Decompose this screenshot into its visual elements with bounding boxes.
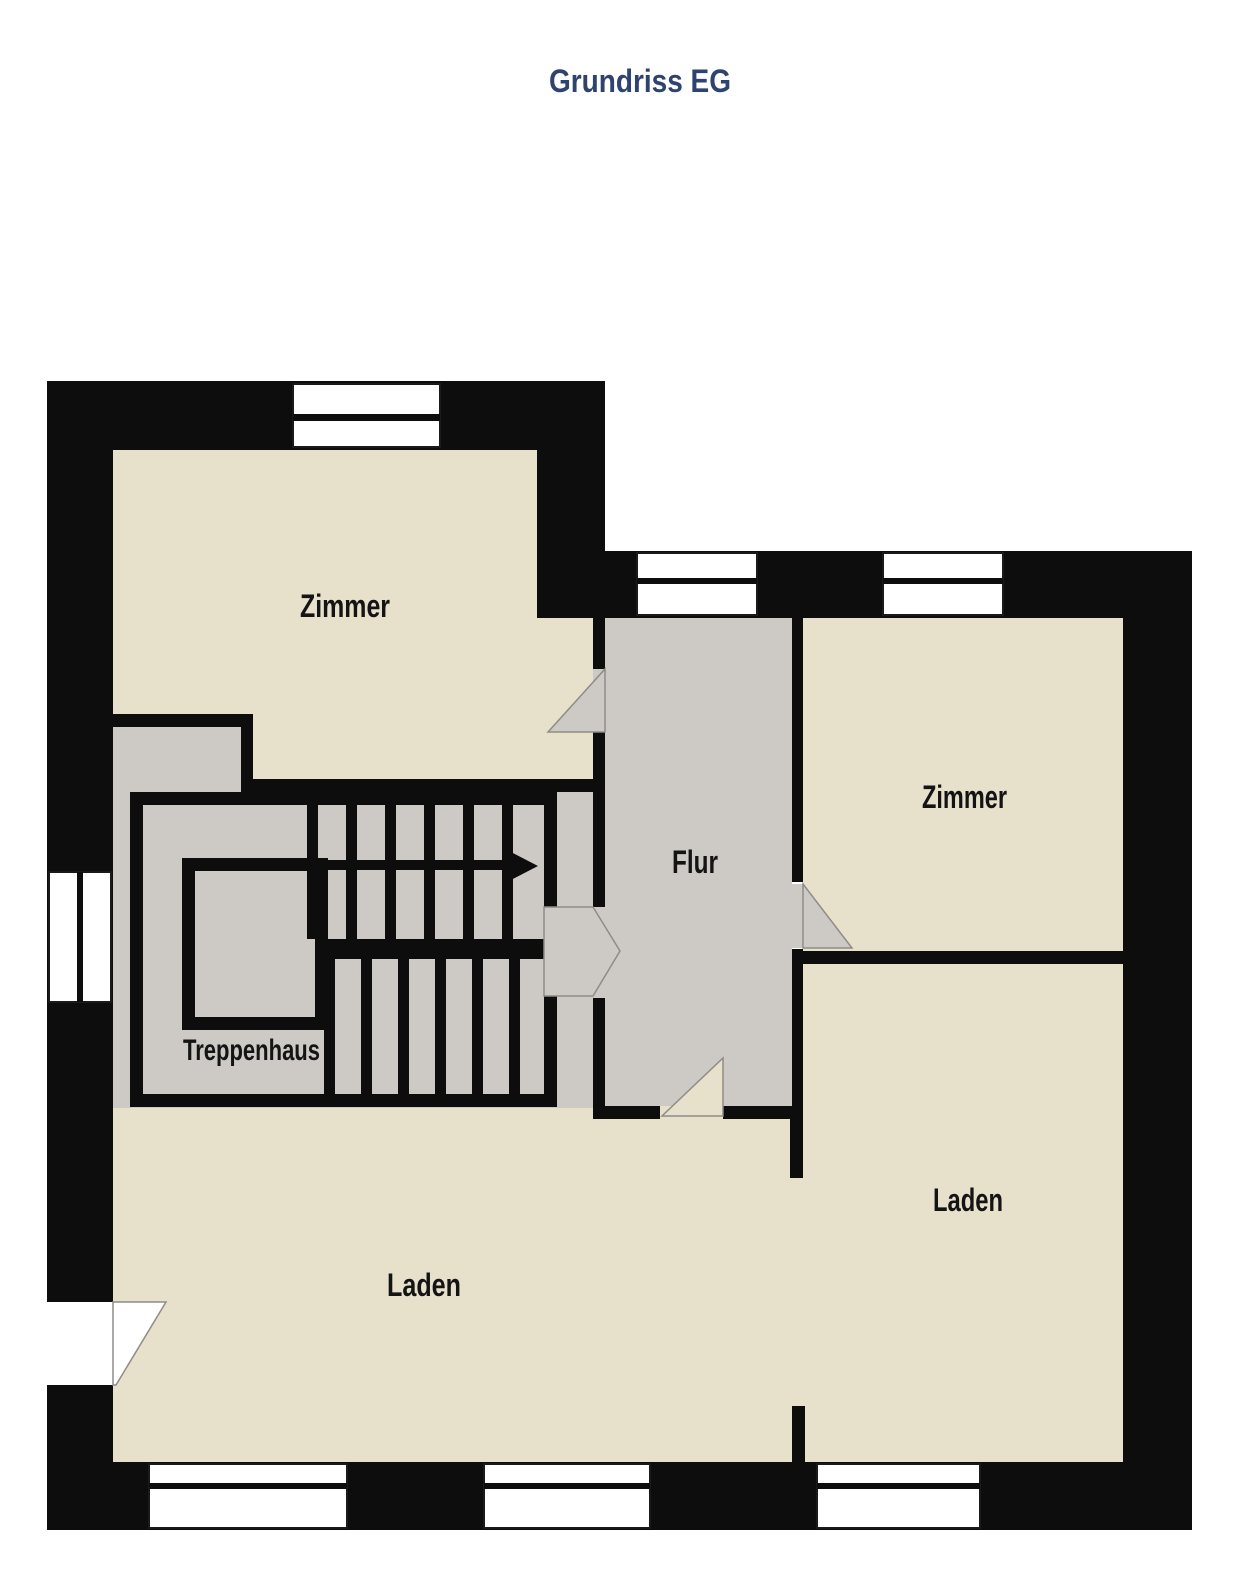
label-laden-left: Laden — [387, 1267, 461, 1303]
wall-laden-divider-stub-bottom — [792, 1406, 805, 1464]
window-top-flur-mullion — [637, 578, 757, 584]
stair-tread — [424, 805, 435, 939]
stair-tread — [385, 805, 396, 939]
wall-flur-bottom-right — [723, 1106, 792, 1119]
stair-tread — [435, 959, 446, 1094]
stair-tread — [398, 959, 409, 1094]
window-left-stairwell-mullion — [77, 872, 83, 1002]
page-title: Grundriss EG — [549, 63, 731, 99]
wall-zimmer-stair-right — [241, 779, 605, 792]
floor-plan-drawing: Grundriss EG — [0, 0, 1236, 1580]
door-gap-entrance — [47, 1302, 113, 1385]
stair-tread — [463, 805, 474, 939]
wall-right — [1123, 551, 1192, 1530]
label-zimmer-top-left: Zimmer — [300, 588, 390, 624]
wall-flur-bottom-left — [593, 1106, 660, 1119]
label-zimmer-right: Zimmer — [922, 779, 1007, 815]
stair-tread — [509, 959, 520, 1094]
label-flur: Flur — [672, 844, 718, 880]
wall-flur-right-upper — [792, 616, 803, 882]
window-bottom-2 — [484, 1464, 650, 1528]
stairwell-wall-right-lower — [544, 996, 557, 1107]
stair-core-wall-left — [182, 858, 195, 1030]
stairwell-wall-right-upper — [544, 792, 557, 907]
wall-flur-right-lower — [792, 949, 803, 1108]
window-bottom-3-mullion — [817, 1483, 980, 1489]
stair-tread — [346, 805, 357, 939]
window-top-left-mullion — [293, 414, 440, 421]
window-bottom-2-mullion — [484, 1483, 650, 1489]
stairwell-wall-bottom — [130, 1094, 557, 1107]
wall-junction-column — [537, 450, 605, 618]
wall-flur-left-middle — [593, 731, 605, 907]
floor-plan-page: Grundriss EG — [0, 0, 1236, 1580]
stair-tread — [472, 959, 483, 1094]
stairwell-wall-top — [130, 792, 557, 805]
label-treppenhaus: Treppenhaus — [183, 1034, 320, 1067]
stair-tread — [324, 959, 335, 1094]
stairwell-wall-left — [130, 792, 143, 1107]
window-bottom-3 — [817, 1464, 980, 1528]
stair-tread — [361, 959, 372, 1094]
window-top-zimmer-right-mullion — [883, 578, 1003, 584]
stair-landing-divider — [315, 939, 551, 959]
window-bottom-1 — [149, 1464, 347, 1528]
door-gap-flur-zimmer-right — [792, 884, 803, 948]
window-bottom-1-mullion — [149, 1483, 347, 1489]
label-laden-right: Laden — [933, 1182, 1003, 1218]
wall-flur-left-lower — [593, 998, 605, 1108]
stair-arrow-shaft — [193, 860, 508, 870]
wall-zimmer-stair-left — [113, 714, 253, 727]
wall-flur-left-upper — [593, 616, 605, 670]
stair-core-wall-bottom — [182, 1017, 328, 1030]
stair-tread — [307, 805, 318, 939]
wall-zimmer-laden-divider — [803, 951, 1123, 964]
